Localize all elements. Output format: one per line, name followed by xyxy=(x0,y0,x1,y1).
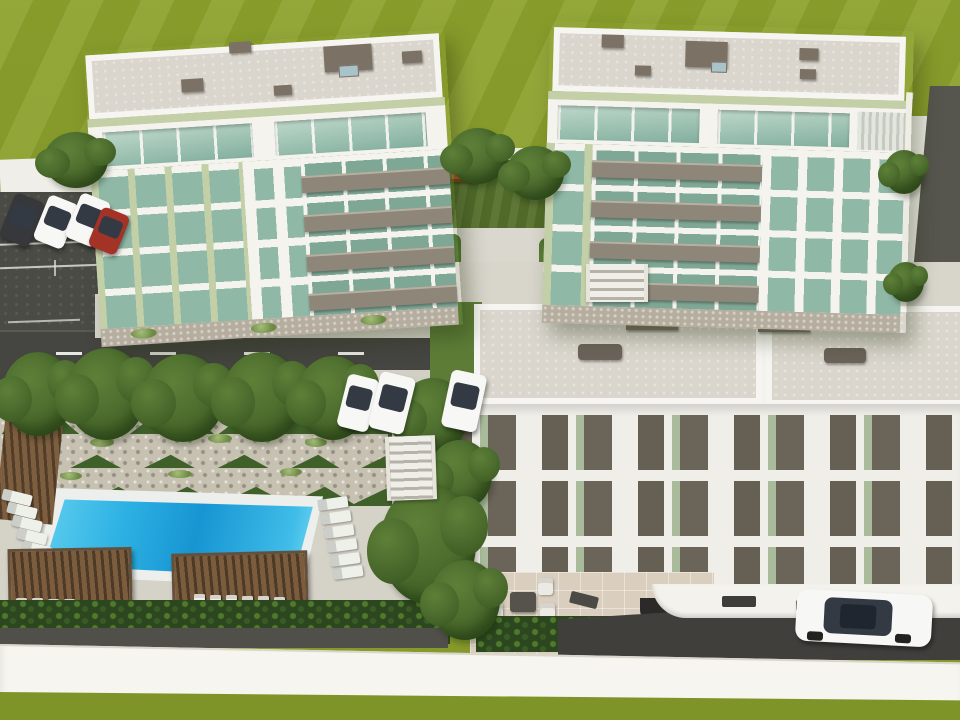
car-glass xyxy=(345,384,373,412)
tree xyxy=(44,132,108,188)
window-zone xyxy=(300,149,458,316)
parking-stall-line xyxy=(54,260,56,276)
courtyard-stairs xyxy=(586,264,648,302)
balcony xyxy=(301,167,450,193)
skylight xyxy=(338,64,359,77)
roof-vent xyxy=(274,85,293,96)
roof-vent xyxy=(578,344,622,360)
penthouse-window xyxy=(717,110,850,148)
shrub xyxy=(305,438,327,447)
balcony xyxy=(591,200,761,222)
car-sunroof xyxy=(839,604,876,630)
car-glass xyxy=(450,381,480,410)
car-wheel xyxy=(895,634,911,644)
planter-tree xyxy=(888,262,924,302)
garden-stairs xyxy=(385,435,437,501)
penthouse-window xyxy=(102,123,254,166)
roof-vent xyxy=(181,78,204,92)
driveway-car-white xyxy=(795,588,934,647)
balcony xyxy=(590,241,760,263)
patio-table xyxy=(510,592,536,612)
car-glass xyxy=(97,215,124,239)
roof-terrace-railing xyxy=(857,112,906,151)
roof-vent xyxy=(402,50,423,63)
roof-vent xyxy=(229,41,252,53)
courtyard-tree xyxy=(506,146,564,200)
shrub xyxy=(168,470,192,478)
shrub xyxy=(60,472,82,480)
tower-facade xyxy=(91,149,458,329)
roof-vent xyxy=(799,48,818,61)
car-wheel xyxy=(807,631,823,641)
roof-vent xyxy=(800,69,816,79)
patio-chair xyxy=(538,578,553,595)
roof-vent xyxy=(635,65,651,75)
wall-vent xyxy=(722,596,756,607)
balcony xyxy=(304,206,453,232)
architectural-rendering xyxy=(0,0,960,720)
car-glass xyxy=(378,383,409,413)
balcony xyxy=(592,160,762,182)
apartment-tower-left xyxy=(83,29,463,347)
penthouse-window xyxy=(557,105,700,143)
shrub xyxy=(208,434,232,443)
penthouse-window xyxy=(274,112,428,155)
shrub xyxy=(280,468,302,476)
car-glass xyxy=(9,202,38,229)
roof-vent xyxy=(824,348,866,363)
window-zone xyxy=(242,158,310,319)
balcony xyxy=(309,285,458,311)
balcony xyxy=(306,246,455,272)
roof-vent xyxy=(602,34,624,48)
skylight xyxy=(711,61,727,72)
garden-tree xyxy=(430,560,500,640)
planter-tree xyxy=(884,150,924,194)
